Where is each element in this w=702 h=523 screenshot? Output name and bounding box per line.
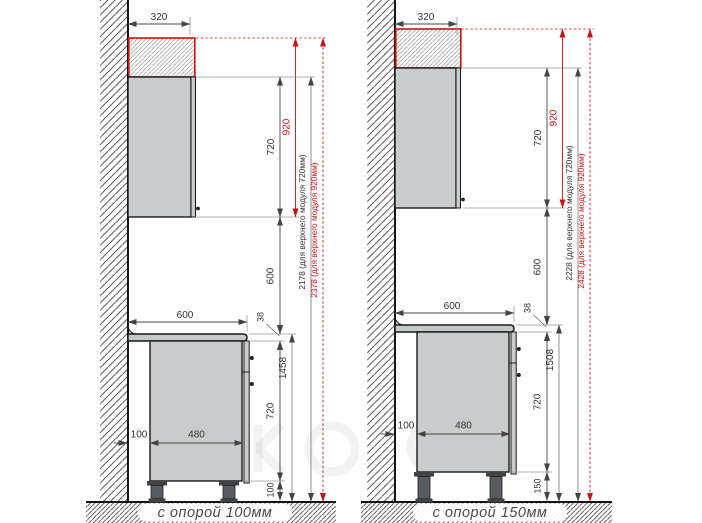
base-cabinet-front [244, 341, 249, 483]
countertop [395, 325, 514, 332]
dim-label: 920 [282, 118, 293, 135]
countertop-wall-lip [395, 317, 403, 325]
adjustable-leg-back [414, 472, 434, 503]
upper-extension-zone [129, 38, 195, 77]
base-cabinet [417, 332, 509, 472]
adjustable-leg-back [147, 481, 167, 503]
drawer-knob-icon [517, 347, 521, 351]
dim-upper-height-alt: 920 [282, 38, 296, 217]
upper-cabinet [128, 77, 191, 217]
drawing-support-150: 320 600 720 600 38 720 150 [361, 0, 612, 523]
door-knob-icon [461, 198, 465, 202]
upper-cabinet [395, 68, 456, 208]
caption-label: с опорой 100мм [158, 505, 273, 521]
dim-label: 2428 (для верхнего модуля 920мм) [576, 153, 586, 288]
dim-label: 600 [533, 258, 544, 275]
dim-label: 38 [256, 312, 266, 322]
dim-label: 320 [151, 12, 168, 23]
diagram-canvas: 320 600 720 600 38 720 100 [0, 0, 702, 523]
dim-label: 150 [533, 478, 543, 493]
dim-counter-width: 600 [395, 301, 514, 313]
dim-label: 720 [266, 138, 277, 155]
dim-top-width: 320 [128, 12, 190, 24]
caption-label: с опорой 150мм [433, 505, 548, 521]
dim-label: 600 [177, 310, 194, 321]
dim-label: 2178 (для верхнего модуля 720мм) [297, 154, 307, 289]
caption-support-100: с опорой 100мм [138, 504, 292, 522]
base-cabinet-front [511, 332, 516, 474]
wall-hatch [367, 0, 395, 502]
countertop-wall-lip [128, 326, 136, 334]
dim-label: 600 [266, 267, 277, 284]
dim-counter-thickness: 38 [523, 303, 548, 345]
door-knob-icon [196, 207, 200, 211]
dim-leg-height: 100 [266, 481, 281, 501]
base-cabinet [150, 341, 242, 481]
dim-label: 100 [266, 482, 276, 497]
upper-cabinet-door [456, 68, 461, 208]
dim-counter-width: 600 [128, 310, 247, 322]
dim-label: 100 [398, 421, 415, 432]
caption-support-150: с опорой 150мм [413, 504, 567, 522]
wall-hatch [100, 0, 128, 502]
dim-label: 1458 [278, 356, 289, 379]
dim-label: 100 [131, 430, 148, 441]
dim-upper-height-alt: 920 [549, 29, 563, 208]
dim-top-width: 320 [395, 12, 457, 24]
dim-upper-height: 720 [533, 68, 547, 208]
dim-leg-height: 150 [533, 472, 548, 501]
dim-gap: 600 [533, 208, 548, 325]
drawing-support-100: 320 600 720 600 38 720 100 [86, 0, 336, 523]
door-knob-icon [250, 382, 254, 386]
dim-label: 720 [266, 402, 277, 419]
adjustable-leg-front [219, 481, 239, 503]
drawer-knob-icon [250, 356, 254, 360]
adjustable-leg-front [486, 472, 506, 503]
kitchen-mounting-diagram: 320 600 720 600 38 720 100 [0, 0, 702, 523]
dim-counter-thickness: 38 [256, 312, 281, 354]
dim-label: 1508 [545, 348, 556, 371]
dim-label: 720 [533, 393, 544, 410]
door-knob-icon [517, 373, 521, 377]
upper-extension-zone [396, 29, 461, 68]
dim-upper-height: 720 [266, 77, 280, 217]
dim-label: 2228 (для верхнего модуля 720мм) [564, 145, 574, 280]
dim-label: 720 [533, 129, 544, 146]
dim-label: 920 [549, 109, 560, 126]
dim-label: 480 [455, 421, 472, 432]
upper-cabinet-door [191, 77, 196, 217]
dim-label: 480 [188, 430, 205, 441]
countertop [128, 334, 247, 341]
dim-label: 600 [444, 301, 461, 312]
dim-label: 320 [418, 12, 435, 23]
dim-gap: 600 [266, 217, 281, 334]
dim-label: 38 [523, 303, 533, 313]
dim-label: 2378 (для верхнего модуля 920мм) [309, 162, 319, 297]
